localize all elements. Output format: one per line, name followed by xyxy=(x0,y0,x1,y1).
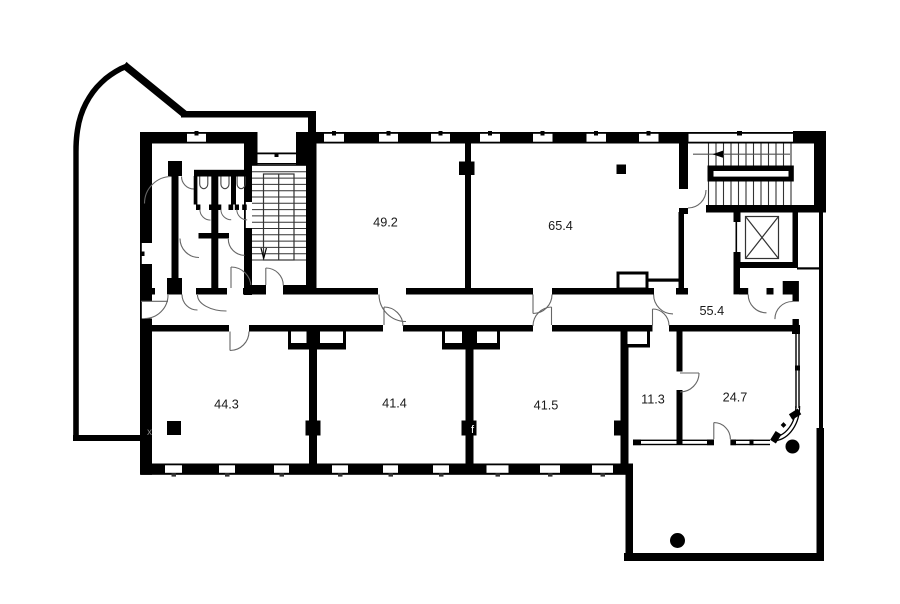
svg-text:55.4: 55.4 xyxy=(699,304,724,318)
svg-text:44.3: 44.3 xyxy=(214,398,239,412)
svg-text:x: x xyxy=(147,427,152,438)
svg-text:41.5: 41.5 xyxy=(534,399,559,413)
svg-text:11.3: 11.3 xyxy=(641,393,665,407)
svg-text:41.4: 41.4 xyxy=(382,397,407,411)
svg-text:24.7: 24.7 xyxy=(723,391,748,405)
svg-text:65.4: 65.4 xyxy=(548,219,573,233)
svg-text:49.2: 49.2 xyxy=(373,216,398,230)
